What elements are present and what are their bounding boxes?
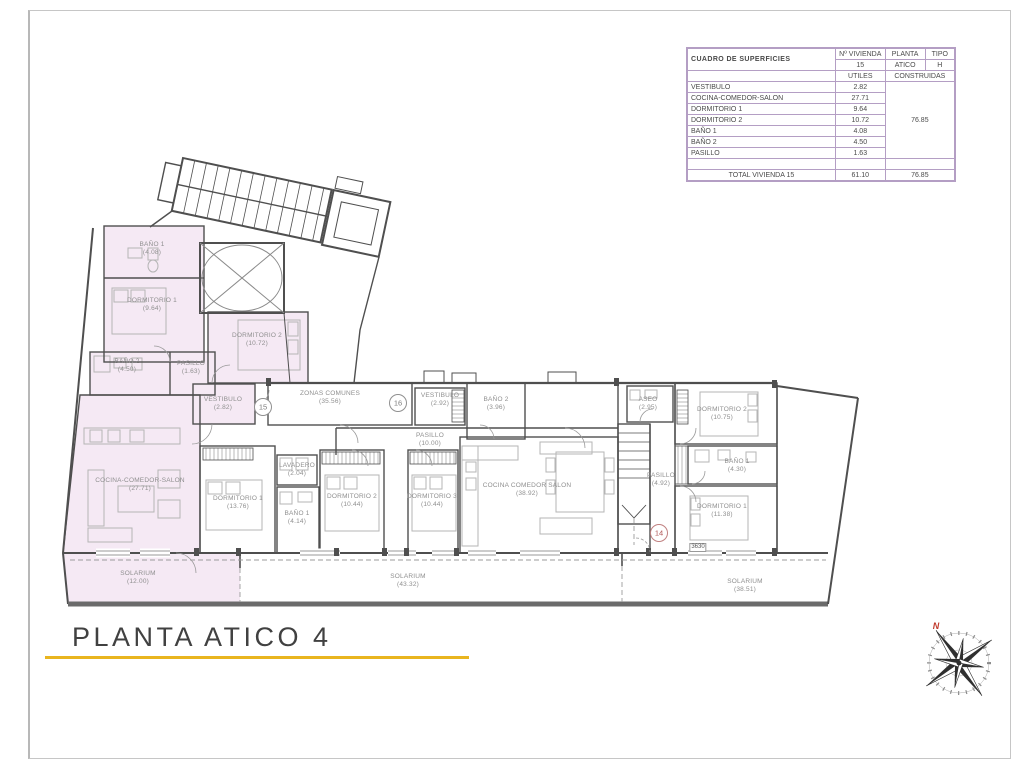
room-label-u14-dorm1: DORMITORIO 1(11.38) — [697, 503, 747, 519]
room-label-u16-solarium: SOLARIUM(43.32) — [390, 573, 426, 589]
room-label-u15-bano2: BAÑO 2(4.50) — [114, 358, 139, 374]
tipo-value: H — [925, 60, 955, 71]
room-label-u15-pasillo: PASILLO(1.63) — [177, 360, 205, 376]
room-label-u16-dorm2: DORMITORIO 2(10.44) — [327, 493, 377, 509]
room-label-u15-salon: COCINA-COMEDOR-SALON(27.71) — [95, 477, 185, 493]
room-label-u16-lavadero: LAVADERO(2.04) — [279, 462, 315, 478]
room-label-u16-bano2: BAÑO 2(3.96) — [483, 396, 508, 412]
room-label-u16-salon: COCINA COMEDOR SALON(38.92) — [483, 482, 572, 498]
table-total-row: TOTAL VIVIENDA 15 61.10 76.85 — [687, 170, 955, 182]
room-label-u14-solarium: SOLARIUM(38.51) — [727, 578, 763, 594]
col-utiles: UTILES — [835, 71, 885, 82]
room-label-u14-dorm2: DORMITORIO 2(10.75) — [697, 406, 747, 422]
room-label-u15-solarium: SOLARIUM(12.00) — [120, 570, 156, 586]
room-label-u16-pasillo: PASILLO(10.00) — [416, 432, 444, 448]
surfaces-table: CUADRO DE SUPERFICIES Nº VIVIENDA PLANTA… — [686, 47, 956, 182]
page-title: PLANTA ATICO 4 — [72, 622, 332, 653]
col-construidas: CONSTRUIDAS — [885, 71, 955, 82]
construidas-value: 76.85 — [885, 82, 955, 159]
room-label-u16-bano1: BAÑO 1(4.14) — [284, 510, 309, 526]
col-vivienda: Nº VIVIENDA — [835, 48, 885, 60]
compass-rose — [913, 617, 1005, 709]
room-label-u14-bano1: BAÑO 1(4.30) — [724, 458, 749, 474]
total-label: TOTAL VIVIENDA 15 — [687, 170, 835, 182]
vivienda-value: 15 — [835, 60, 885, 71]
planta-value: ATICO — [885, 60, 925, 71]
room-label-u14-pasillo: PASILLO(4.92) — [647, 472, 675, 488]
col-planta: PLANTA — [885, 48, 925, 60]
col-tipo: TIPO — [925, 48, 955, 60]
table-title: CUADRO DE SUPERFICIES — [687, 48, 835, 71]
unit-badge-14: 14 — [655, 529, 663, 538]
dimension-3630: 3630 — [689, 543, 706, 552]
room-label-u15-vestibulo: VESTIBULO(2.82) — [204, 396, 242, 412]
room-label-u15-dorm1: DORMITORIO 1(9.64) — [127, 297, 177, 313]
room-label-u15-bano1: BAÑO 1(4.08) — [139, 241, 164, 257]
title-underline — [45, 656, 469, 659]
total-utiles: 61.10 — [835, 170, 885, 182]
room-label-u16-vestibulo: VESTIBULO(2.92) — [421, 392, 459, 408]
room-label-u16-dorm3: DORMITORIO 3(10.44) — [407, 493, 457, 509]
room-label-u14-aseo: ASEO(2.95) — [639, 396, 658, 412]
compass-north-label: N — [933, 621, 940, 631]
unit-badge-15: 15 — [259, 403, 267, 412]
table-row: VESTIBULO 2.82 76.85 — [687, 82, 955, 93]
room-label-u16-dorm1: DORMITORIO 1(13.76) — [213, 495, 263, 511]
unit-badge-16: 16 — [394, 399, 402, 408]
total-construidas: 76.85 — [885, 170, 955, 182]
unit15-highlight — [63, 226, 308, 604]
room-label-zonas-comunes: ZONAS COMUNES(35.56) — [300, 390, 360, 406]
room-label-u15-dorm2: DORMITORIO 2(10.72) — [232, 332, 282, 348]
